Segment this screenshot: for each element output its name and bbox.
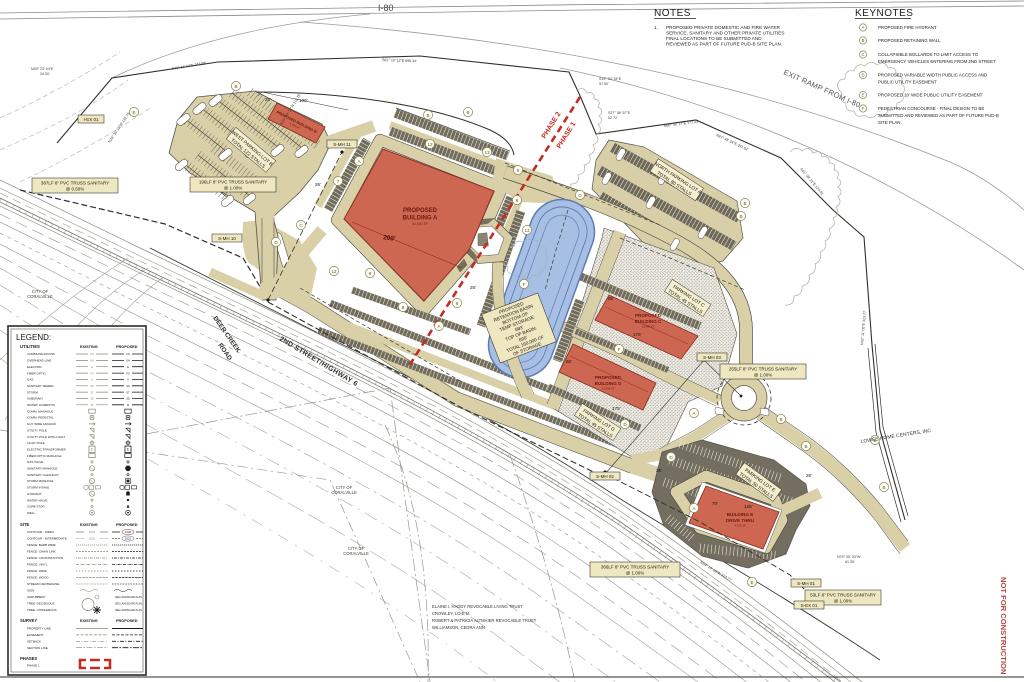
svg-text:1.: 1. [654,25,658,30]
svg-text:ROBERT & PATRICIA ALTMAIER REV: ROBERT & PATRICIA ALTMAIER REVOCABLE TRU… [432,618,537,623]
svg-text:COLLAPSIBLE BOLLARDS TO LIMIT: COLLAPSIBLE BOLLARDS TO LIMIT ACCESS TO [878,52,979,57]
svg-text:FINAL LOCATIONS TO BE SUBMITTE: FINAL LOCATIONS TO BE SUBMITTED AND [666,36,762,41]
svg-text:PROPOSED: PROPOSED [595,375,622,380]
svg-text:FENCE: WOOD: FENCE: WOOD [27,576,49,580]
svg-text:E: E [127,365,129,369]
svg-text:13: 13 [484,150,490,155]
svg-text:1020: 1020 [89,530,96,534]
svg-text:B: B [426,113,429,118]
svg-text:PROPOSED: PROPOSED [116,619,138,623]
svg-text:WATER VALVE: WATER VALVE [27,498,48,502]
svg-text:65': 65' [608,296,614,301]
svg-text:366LF 8" PVC TRUSS SANITARY: 366LF 8" PVC TRUSS SANITARY [601,565,669,570]
svg-text:STORM INTAKE: STORM INTAKE [27,486,49,490]
svg-text:387LF 8" PVC TRUSS SANITARY: 387LF 8" PVC TRUSS SANITARY [41,181,109,186]
svg-text:34.00': 34.00' [40,72,50,76]
svg-text:SITE PLAN.: SITE PLAN. [878,120,902,125]
svg-text:175': 175' [633,332,642,337]
svg-text:@ 1.00%: @ 1.00% [834,599,853,604]
svg-text:B: B [779,417,782,422]
svg-text:S37° 56' 57"E: S37° 56' 57"E [608,111,631,115]
svg-text:FIBER OPTIC: FIBER OPTIC [27,371,47,375]
svg-text:N79° 35' 03"W: N79° 35' 03"W [837,555,861,559]
svg-text:7: 7 [337,179,340,184]
svg-text:BUILDING E: BUILDING E [727,512,754,517]
svg-text:PEDESTRIAN CONCOURSE - FINAL D: PEDESTRIAN CONCOURSE - FINAL DESIGN TO B… [878,106,984,111]
svg-text:8: 8 [517,168,520,173]
svg-text:S19° 04' 34"E: S19° 04' 34"E [599,77,622,81]
svg-text:255LF 8" PVC TRUSS SANITARY: 255LF 8" PVC TRUSS SANITARY [729,367,797,372]
svg-text:ELAINE I. HADDY REVOCABLE LIVI: ELAINE I. HADDY REVOCABLE LIVING TRUST [432,604,523,609]
svg-text:S-MH 02: S-MH 02 [596,474,614,479]
svg-text:LIGHT POLE: LIGHT POLE [27,441,45,445]
svg-text:PROPOSED FIRE HYDRANT: PROPOSED FIRE HYDRANT [878,25,937,30]
svg-text:HYDRANT: HYDRANT [27,492,42,496]
svg-text:UTILITY POLE: UTILITY POLE [27,428,47,432]
svg-text:D: D [861,73,864,78]
svg-text:FO: FO [90,371,94,375]
svg-text:1022: 1022 [125,537,132,541]
svg-text:ELECTRIC TRANSFORMER: ELECTRIC TRANSFORMER [27,448,67,452]
svg-text:CONTOUR - INDEX: CONTOUR - INDEX [27,530,54,534]
svg-text:CORALVILLE: CORALVILLE [331,490,357,495]
svg-text:NOTES: NOTES [654,8,691,19]
svg-text:SURVEY: SURVEY [20,618,37,623]
svg-text:TREE: DECIDUOUS: TREE: DECIDUOUS [27,602,55,606]
svg-text:6: 6 [516,198,519,203]
svg-text:SEE LANDSCAPE PLAN: SEE LANDSCAPE PLAN [115,609,142,612]
svg-text:GAS VALVE: GAS VALVE [27,460,43,464]
svg-text:BUILDING A: BUILDING A [403,216,438,222]
svg-text:S-MH 01: S-MH 01 [797,581,815,586]
svg-text:COMM. MANHOLE: COMM. MANHOLE [27,409,53,413]
svg-text:SEE LANDSCAPE PLAN: SEE LANDSCAPE PLAN [115,603,142,606]
svg-text:SD: SD [90,397,94,401]
svg-text:B: B [862,38,865,43]
svg-text:B: B [739,214,742,219]
svg-text:9: 9 [369,271,372,276]
svg-text:100': 100' [299,98,308,103]
svg-text:UTILITIES: UTILITIES [20,344,40,349]
svg-text:UTILITY POLE WITH LIGHT: UTILITY POLE WITH LIGHT [27,435,65,439]
svg-text:26': 26' [656,468,662,473]
svg-text:SUBDRAIN: SUBDRAIN [27,397,43,401]
svg-text:EXISTING: EXISTING [80,619,98,623]
svg-text:9: 9 [456,301,459,306]
svg-text:KEYNOTES: KEYNOTES [855,8,913,19]
svg-text:LEGEND:: LEGEND: [16,333,51,342]
svg-text:PROPERTY LINE: PROPERTY LINE [27,627,51,631]
svg-text:ST: ST [126,390,130,394]
svg-text:41,000 SF: 41,000 SF [412,222,428,226]
svg-text:STREAM CENTERLINE: STREAM CENTERLINE [27,582,59,586]
svg-text:EASEMENT: EASEMENT [27,633,44,637]
svg-text:B: B [804,444,807,449]
svg-text:@ 1.00%: @ 1.00% [626,571,645,576]
svg-text:E: E [132,110,135,115]
svg-text:WELL: WELL [27,511,36,515]
svg-text:S-MH 03: S-MH 03 [703,355,721,360]
svg-text:FENCE: CONSTRUCTION: FENCE: CONSTRUCTION [27,556,63,560]
svg-text:WATER: DOMESTIC: WATER: DOMESTIC [27,403,56,407]
svg-text:WILLIAMSON, CEDRA ANN: WILLIAMSON, CEDRA ANN [432,625,485,630]
svg-text:125': 125' [744,504,753,509]
svg-text:REVIEWED AS PART OF FUTURE PUD: REVIEWED AS PART OF FUTURE PUD-B SITE PL… [666,42,782,47]
svg-text:GUY WIRE ANCHOR: GUY WIRE ANCHOR [27,422,57,426]
svg-text:F: F [618,347,621,352]
svg-text:A: A [862,25,865,30]
svg-text:97.50': 97.50' [599,82,609,86]
svg-text:PHASES: PHASES [20,656,37,661]
svg-text:SITE: SITE [20,522,30,527]
svg-text:26': 26' [470,285,476,290]
svg-text:SECTION LINE: SECTION LINE [27,646,48,650]
svg-text:PROPOSED: PROPOSED [116,523,138,527]
svg-text:ST: ST [90,390,94,394]
svg-text:OH: OH [126,359,130,363]
svg-text:C: C [861,52,864,57]
svg-text:FENCE: VINYL: FENCE: VINYL [27,563,48,567]
svg-text:BUILDING C: BUILDING C [635,319,662,324]
svg-text:1020: 1020 [125,530,132,534]
svg-text:65': 65' [566,359,572,364]
svg-text:OVERHEAD LINE: OVERHEAD LINE [27,359,51,363]
svg-text:ELECTRIC: ELECTRIC [27,365,43,369]
svg-text:196LF 8" PVC TRUSS SANITARY: 196LF 8" PVC TRUSS SANITARY [199,180,267,185]
svg-text:53LF 8" PVC TRUSS SANITARY: 53LF 8" PVC TRUSS SANITARY [810,593,876,598]
svg-text:I-EX 01: I-EX 01 [83,117,99,122]
svg-text:PROPOSED 10' WIDE PUBLIC UTILI: PROPOSED 10' WIDE PUBLIC UTILITY EASEMEN… [878,93,983,98]
svg-text:SETBACK: SETBACK [27,640,41,644]
svg-text:B: B [743,201,746,206]
svg-text:26': 26' [315,182,321,187]
svg-text:I-80: I-80 [378,3,394,13]
svg-text:70': 70' [712,501,718,506]
svg-text:SIGN: SIGN [27,589,34,593]
svg-text:8: 8 [402,305,405,310]
svg-text:CROWLEY, LOIS M.: CROWLEY, LOIS M. [432,611,470,616]
svg-text:E: E [750,580,753,585]
svg-text:CO: CO [126,352,130,356]
svg-text:DRIVE THRU: DRIVE THRU [726,518,755,523]
svg-text:25': 25' [265,97,271,102]
svg-text:FENCE: WIRE: FENCE: WIRE [27,569,47,573]
svg-text:SANITARY MANHOLE: SANITARY MANHOLE [27,467,57,471]
svg-text:SERVICE, SANITARY AND OTHER PR: SERVICE, SANITARY AND OTHER PRIVATE UTIL… [666,31,785,36]
svg-text:12: 12 [331,269,337,274]
svg-text:52.72': 52.72' [608,116,618,120]
svg-text:G: G [91,378,93,382]
svg-text:NOT FOR CONSTRUCTION: NOT FOR CONSTRUCTION [999,577,1008,674]
svg-text:PROPOSED: PROPOSED [116,345,138,349]
svg-text:CORALVILLE: CORALVILLE [343,551,369,556]
svg-text:SANITARY SEWER: SANITARY SEWER [27,384,54,388]
svg-text:E: E [862,93,865,98]
svg-text:B: B [882,485,885,490]
svg-text:STORM MANHOLE: STORM MANHOLE [27,479,53,483]
svg-text:FIBER OPTIC MANHOLE: FIBER OPTIC MANHOLE [27,454,62,458]
svg-text:OH: OH [90,359,94,363]
svg-text:GAS: GAS [27,378,33,382]
svg-text:G: G [127,378,129,382]
svg-text:CONTOUR - INTERMEDIATE: CONTOUR - INTERMEDIATE [27,537,67,541]
svg-text:13,498 SF: 13,498 SF [642,325,655,329]
svg-text:@ 1.00%: @ 1.00% [754,373,773,378]
svg-text:S-EX 01: S-EX 01 [801,603,818,608]
svg-text:1022: 1022 [89,537,96,541]
svg-text:N39° 23' 04"E: N39° 23' 04"E [31,67,54,71]
svg-text:SS: SS [126,384,130,388]
svg-text:CORALVILLE: CORALVILLE [27,294,53,299]
svg-text:EMERGENCY VEHICLES ENTERING FR: EMERGENCY VEHICLES ENTERING FROM 2ND STR… [878,59,996,64]
svg-text:SD: SD [126,397,130,401]
svg-text:FENCE: BARB WIRE: FENCE: BARB WIRE [27,543,56,547]
svg-text:PROPOSED: PROPOSED [403,208,438,214]
svg-text:12: 12 [427,142,433,147]
svg-text:COMMUNICATIONS: COMMUNICATIONS [27,352,55,356]
svg-text:TREE: CONIFEROUS: TREE: CONIFEROUS [27,608,57,612]
svg-text:175': 175' [612,406,621,411]
svg-text:STORM: STORM [27,390,38,394]
svg-text:PHASE 1: PHASE 1 [27,664,40,668]
svg-text:E: E [91,365,93,369]
svg-text:13,498 SF: 13,498 SF [602,387,615,391]
svg-text:FO: FO [126,371,130,375]
svg-text:SUBMITTED AND REVIEWED AS PART: SUBMITTED AND REVIEWED AS PART OF FUTURE… [878,113,999,118]
svg-text:S-MH 10: S-MH 10 [218,236,236,241]
svg-text:EXISTING: EXISTING [80,345,98,349]
svg-text:4,700 SF: 4,700 SF [734,524,746,528]
svg-text:SANITARY CLEANOUT: SANITARY CLEANOUT [27,473,59,477]
svg-text:B: B [466,110,469,115]
svg-text:CURB STOP: CURB STOP [27,505,44,509]
svg-text:26': 26' [806,473,812,478]
svg-text:F: F [523,282,526,287]
svg-text:PROPOSED: PROPOSED [635,313,662,318]
svg-text:F: F [862,106,865,111]
svg-text:@ 1.00%: @ 1.00% [224,186,243,191]
svg-text:PROPOSED VARIABLE WIDTH PUBLIC: PROPOSED VARIABLE WIDTH PUBLIC ACCESS AN… [878,73,987,78]
svg-text:61.35': 61.35' [845,560,855,564]
svg-text:B: B [234,84,237,89]
svg-text:@ 0.60%: @ 0.60% [66,187,85,192]
svg-text:PROPOSED PRIVATE DOMESTIC AND: PROPOSED PRIVATE DOMESTIC AND FIRE WATER [666,25,781,30]
svg-text:SHRUBBERY: SHRUBBERY [27,595,46,599]
svg-text:FENCE: CHAIN LINK: FENCE: CHAIN LINK [27,550,56,554]
svg-text:13: 13 [524,228,530,233]
svg-text:S-MH 11: S-MH 11 [333,142,351,147]
svg-text:PUBLIC UTILITY EASEMENT: PUBLIC UTILITY EASEMENT [878,80,937,85]
svg-text:COMM. PEDESTAL: COMM. PEDESTAL [27,416,54,420]
svg-text:SS: SS [90,384,94,388]
svg-text:EXISTING: EXISTING [80,523,98,527]
svg-text:PROPOSED RETAINING WALL: PROPOSED RETAINING WALL [878,38,941,43]
svg-text:CO: CO [90,352,94,356]
svg-text:SEE LANDSCAPE PLAN: SEE LANDSCAPE PLAN [115,596,142,599]
svg-text:BUILDING D: BUILDING D [595,381,622,386]
